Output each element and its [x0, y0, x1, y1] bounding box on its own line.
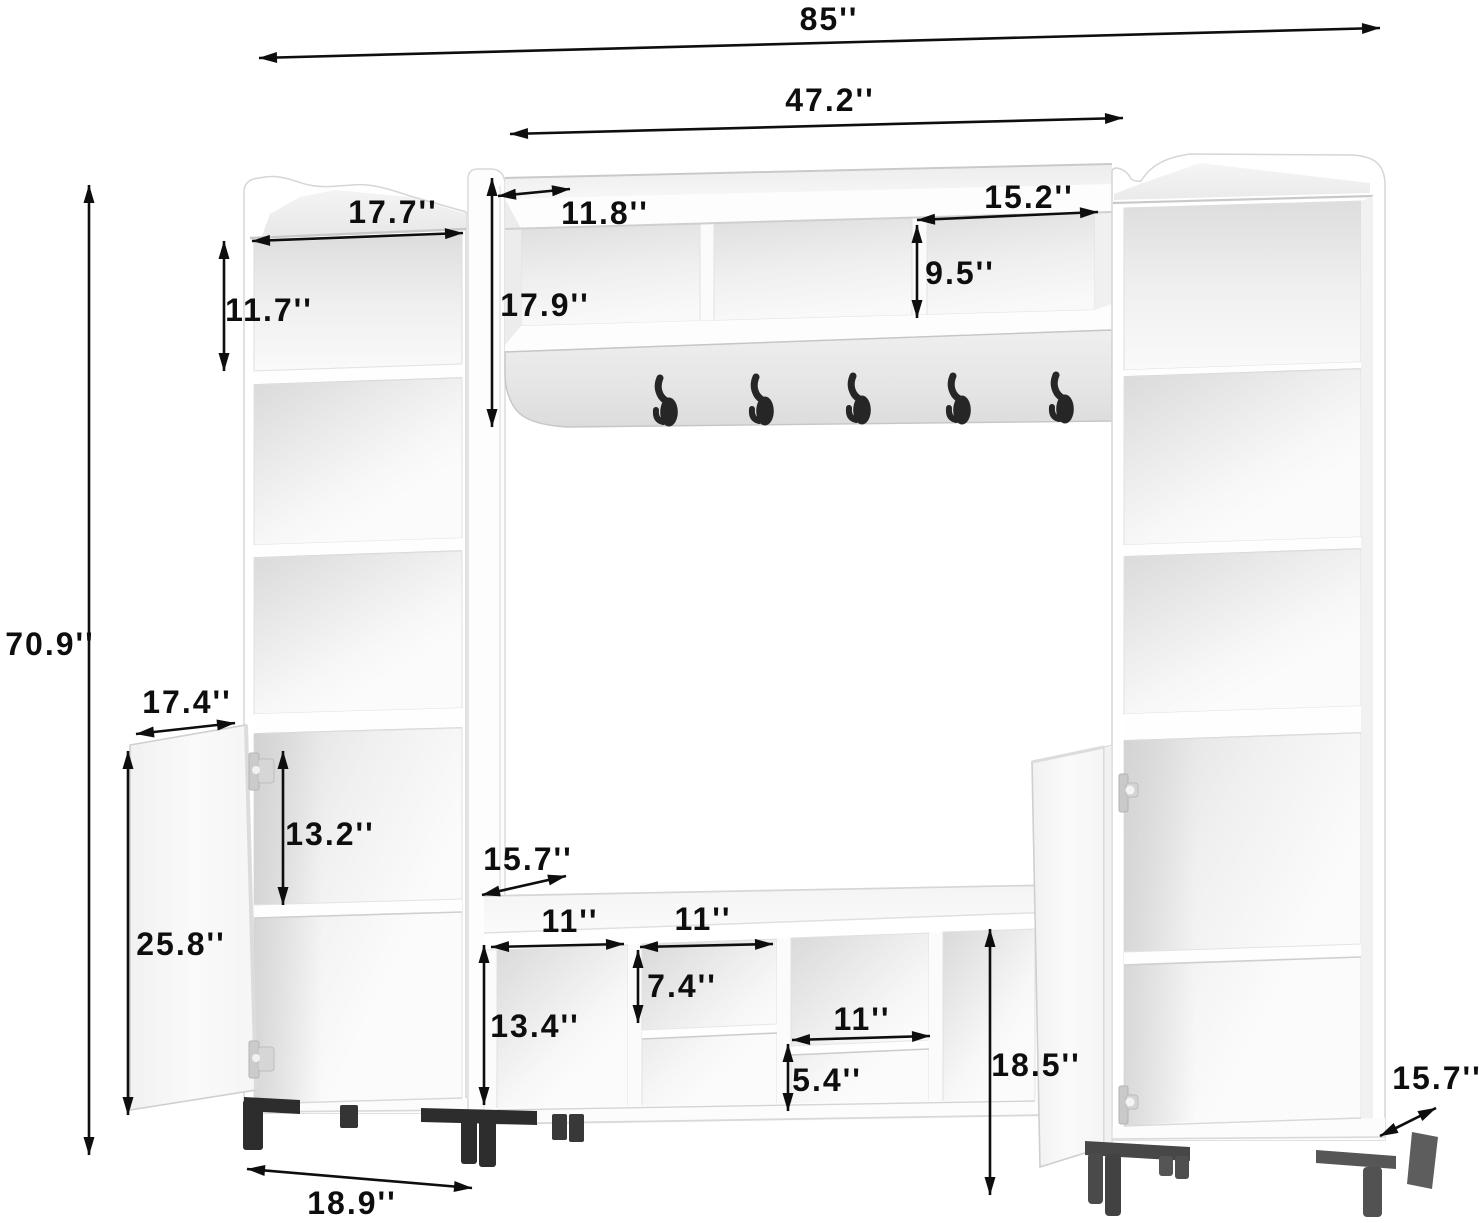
svg-text:15.7'': 15.7''	[1392, 1060, 1479, 1096]
svg-text:25.8'': 25.8''	[136, 926, 226, 962]
svg-text:18.5'': 18.5''	[991, 1047, 1081, 1083]
svg-text:17.4'': 17.4''	[142, 684, 232, 720]
svg-text:11'': 11''	[541, 903, 598, 939]
svg-text:7.4'': 7.4''	[647, 968, 717, 1004]
svg-text:11.7'': 11.7''	[225, 292, 313, 328]
svg-text:70.9'': 70.9''	[5, 626, 95, 662]
svg-text:9.5'': 9.5''	[925, 255, 995, 291]
svg-text:11'': 11''	[833, 1001, 890, 1037]
svg-text:11'': 11''	[674, 901, 731, 937]
svg-text:5.4'': 5.4''	[792, 1062, 862, 1098]
svg-text:17.7'': 17.7''	[348, 194, 438, 230]
svg-text:13.4'': 13.4''	[490, 1008, 580, 1044]
svg-text:13.2'': 13.2''	[285, 816, 375, 852]
svg-text:85'': 85''	[800, 1, 859, 37]
svg-text:15.2'': 15.2''	[984, 179, 1074, 215]
svg-text:15.7'': 15.7''	[483, 841, 573, 877]
svg-text:47.2'': 47.2''	[785, 82, 875, 118]
svg-text:18.9'': 18.9''	[307, 1185, 397, 1221]
svg-text:11.8'': 11.8''	[561, 195, 649, 231]
svg-text:17.9'': 17.9''	[500, 287, 590, 323]
